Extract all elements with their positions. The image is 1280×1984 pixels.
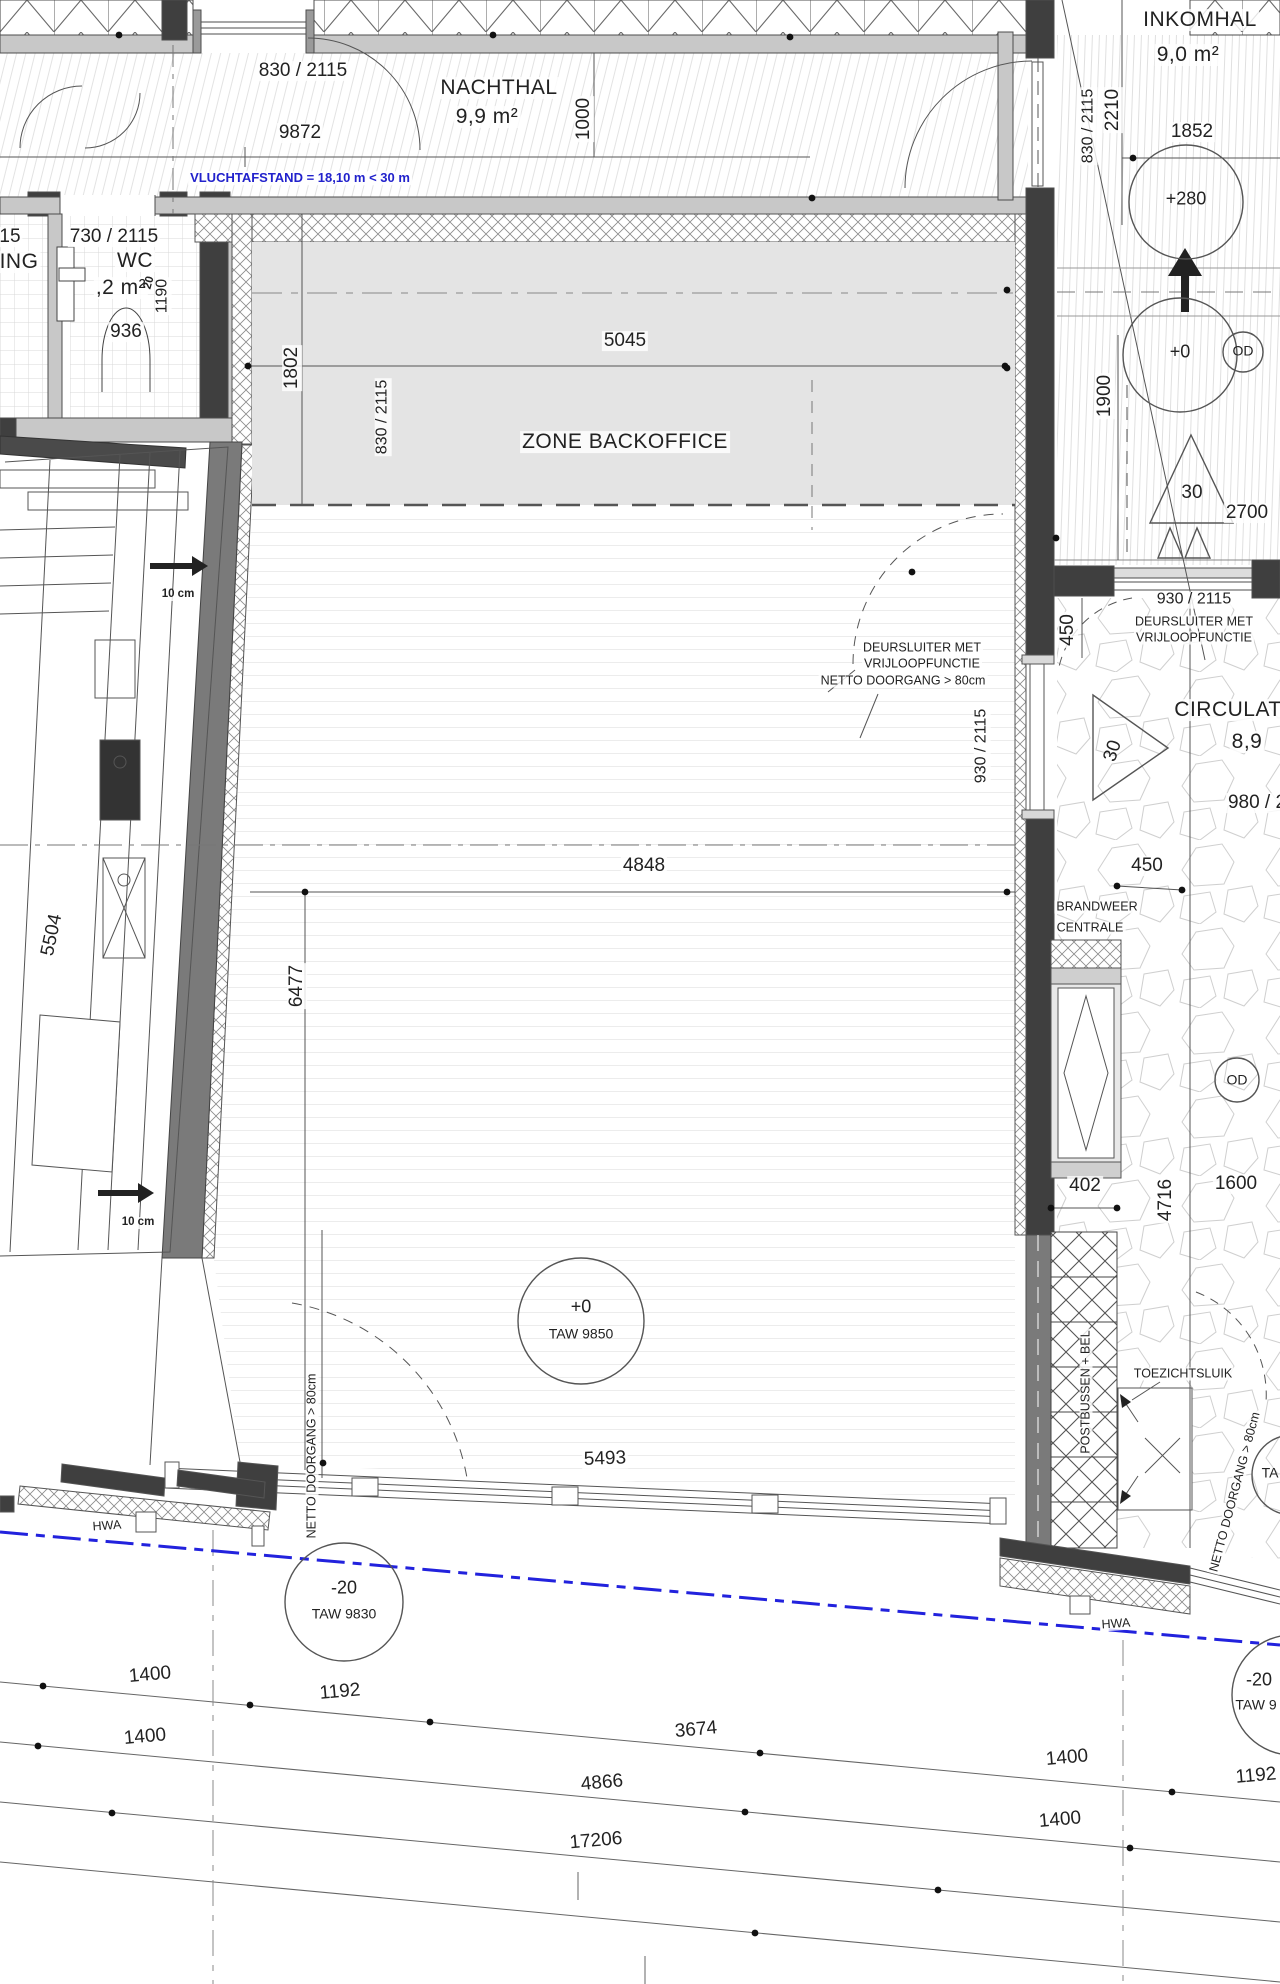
room-area-nachthal: 9,9 m²: [454, 106, 521, 128]
level-taw-9850: TAW 9850: [547, 1327, 616, 1342]
wall-cabinet: [1051, 940, 1121, 1178]
brandweer-centrale-line2: CENTRALE: [1055, 922, 1126, 935]
dim-1400-right-1: 1400: [1043, 1746, 1091, 1770]
zone-backoffice-label: ZONE BACKOFFICE: [520, 431, 730, 453]
dim-450-horizontal: 450: [1129, 856, 1165, 876]
dim-2210: 2210: [1103, 87, 1123, 133]
room-area-circulatie: 8,9: [1230, 731, 1265, 753]
dim-3674: 3674: [672, 1718, 720, 1742]
toezichtsluik-note: TOEZICHTSLUIK: [1132, 1368, 1234, 1381]
dim-5493: 5493: [582, 1448, 629, 1469]
dim-wc-opening: 936: [108, 322, 144, 342]
offset-10cm-note-2: 10 cm: [120, 1217, 157, 1229]
deursluiter-right-line2: VRIJLOOPFUNCTIE: [1134, 632, 1254, 645]
hwa-right-note: HWA: [1099, 1616, 1133, 1631]
dim-5045: 5045: [602, 331, 648, 351]
level-plus0-main: +0: [569, 1298, 594, 1317]
dim-1190: 1190: [155, 277, 172, 315]
dim-2700: 2700: [1224, 503, 1270, 523]
dim-door-top: 830 / 2115: [257, 61, 349, 81]
dim-15-partial: 15: [0, 227, 23, 247]
deursluiter-right-line1: DEURSLUITER MET: [1133, 616, 1255, 629]
level-plus280: +280: [1164, 190, 1209, 209]
machine-room: [0, 436, 242, 1465]
netto-doorgang-bottom-left-note: NETTO DOORGANG > 80cm: [306, 1372, 319, 1541]
dim-1192-left: 1192: [317, 1680, 363, 1704]
dim-4848: 4848: [621, 856, 667, 876]
dim-door-circulatie-bottom: 980 / 2: [1226, 793, 1280, 813]
dim-door-circulatie: 930 / 2115: [1155, 592, 1233, 609]
room-area-wc: ,2 m²: [94, 277, 148, 299]
level-taw-9830: TAW 9830: [310, 1607, 379, 1622]
dim-9872: 9872: [277, 123, 323, 143]
dim-1400-left-2: 1400: [121, 1725, 169, 1749]
dim-6477: 6477: [287, 963, 307, 1009]
level-plus0-entry: +0: [1168, 343, 1193, 362]
netto-doorgang-left-note: NETTO DOORGANG > 80cm: [819, 675, 988, 688]
room-label-inkomhal: INKOMHAL: [1141, 9, 1259, 31]
dim-1802: 1802: [282, 345, 302, 391]
level-taw-9-clipped: TAW 9: [1233, 1698, 1278, 1713]
vluchtafstand-note: VLUCHTAFSTAND = 18,10 m < 30 m: [188, 171, 412, 185]
ta-marker-clipped: TA: [1260, 1466, 1280, 1481]
dim-1192-right: 1192: [1233, 1764, 1279, 1788]
dim-door-inkomhal: 830 / 2115: [1081, 87, 1098, 165]
floor-plan-drawing: [0, 0, 1280, 1984]
offset-10cm-note-1: 10 cm: [160, 589, 197, 601]
room-label-wc: WC: [115, 250, 155, 272]
dim-1400-left-1: 1400: [126, 1663, 174, 1687]
od-marker-entry: OD: [1231, 344, 1256, 359]
od-marker-circulatie: OD: [1225, 1073, 1250, 1088]
dim-1900: 1900: [1095, 373, 1115, 419]
dim-1852: 1852: [1169, 122, 1215, 142]
dim-1000: 1000: [574, 96, 594, 142]
dim-spot-30-a: 30: [1179, 483, 1204, 503]
dim-door-main-room: 930 / 2115: [974, 707, 991, 785]
dim-4716: 4716: [1156, 1177, 1176, 1223]
deursluiter-left-line2: VRIJLOOPFUNCTIE: [862, 658, 982, 671]
level-minus20-left: -20: [329, 1579, 359, 1598]
hwa-left-note: HWA: [90, 1518, 124, 1533]
level-minus20-right: -20: [1244, 1671, 1274, 1690]
brandweer-centrale-line1: BRANDWEER: [1054, 901, 1139, 914]
dim-450-vertical: 450: [1058, 612, 1078, 648]
postbussen-bel-note: POSTBUSSEN + BEL: [1080, 1328, 1093, 1455]
dim-door-backoffice: 830 / 2115: [375, 378, 392, 456]
zone-backoffice-area: [252, 242, 1015, 505]
room-label-circulatie: CIRCULAT: [1172, 699, 1280, 721]
dim-door-wc: 730 / 2115: [68, 227, 160, 247]
room-label-nachthal: NACHTHAL: [438, 77, 559, 99]
dim-402: 402: [1067, 1176, 1103, 1196]
room-area-inkomhal: 9,0 m²: [1155, 44, 1222, 66]
deursluiter-left-line1: DEURSLUITER MET: [861, 642, 983, 655]
dim-1400-right-2: 1400: [1036, 1808, 1084, 1832]
dim-4866: 4866: [578, 1771, 626, 1795]
dim-1600: 1600: [1213, 1174, 1259, 1194]
room-label-ing-partial: ING: [0, 251, 40, 273]
toezichtsluik-hatch: [1118, 1388, 1192, 1510]
floorplan-canvas: NACHTHAL 9,9 m² INKOMHAL 9,0 m² WC ,2 m²…: [0, 0, 1280, 1984]
